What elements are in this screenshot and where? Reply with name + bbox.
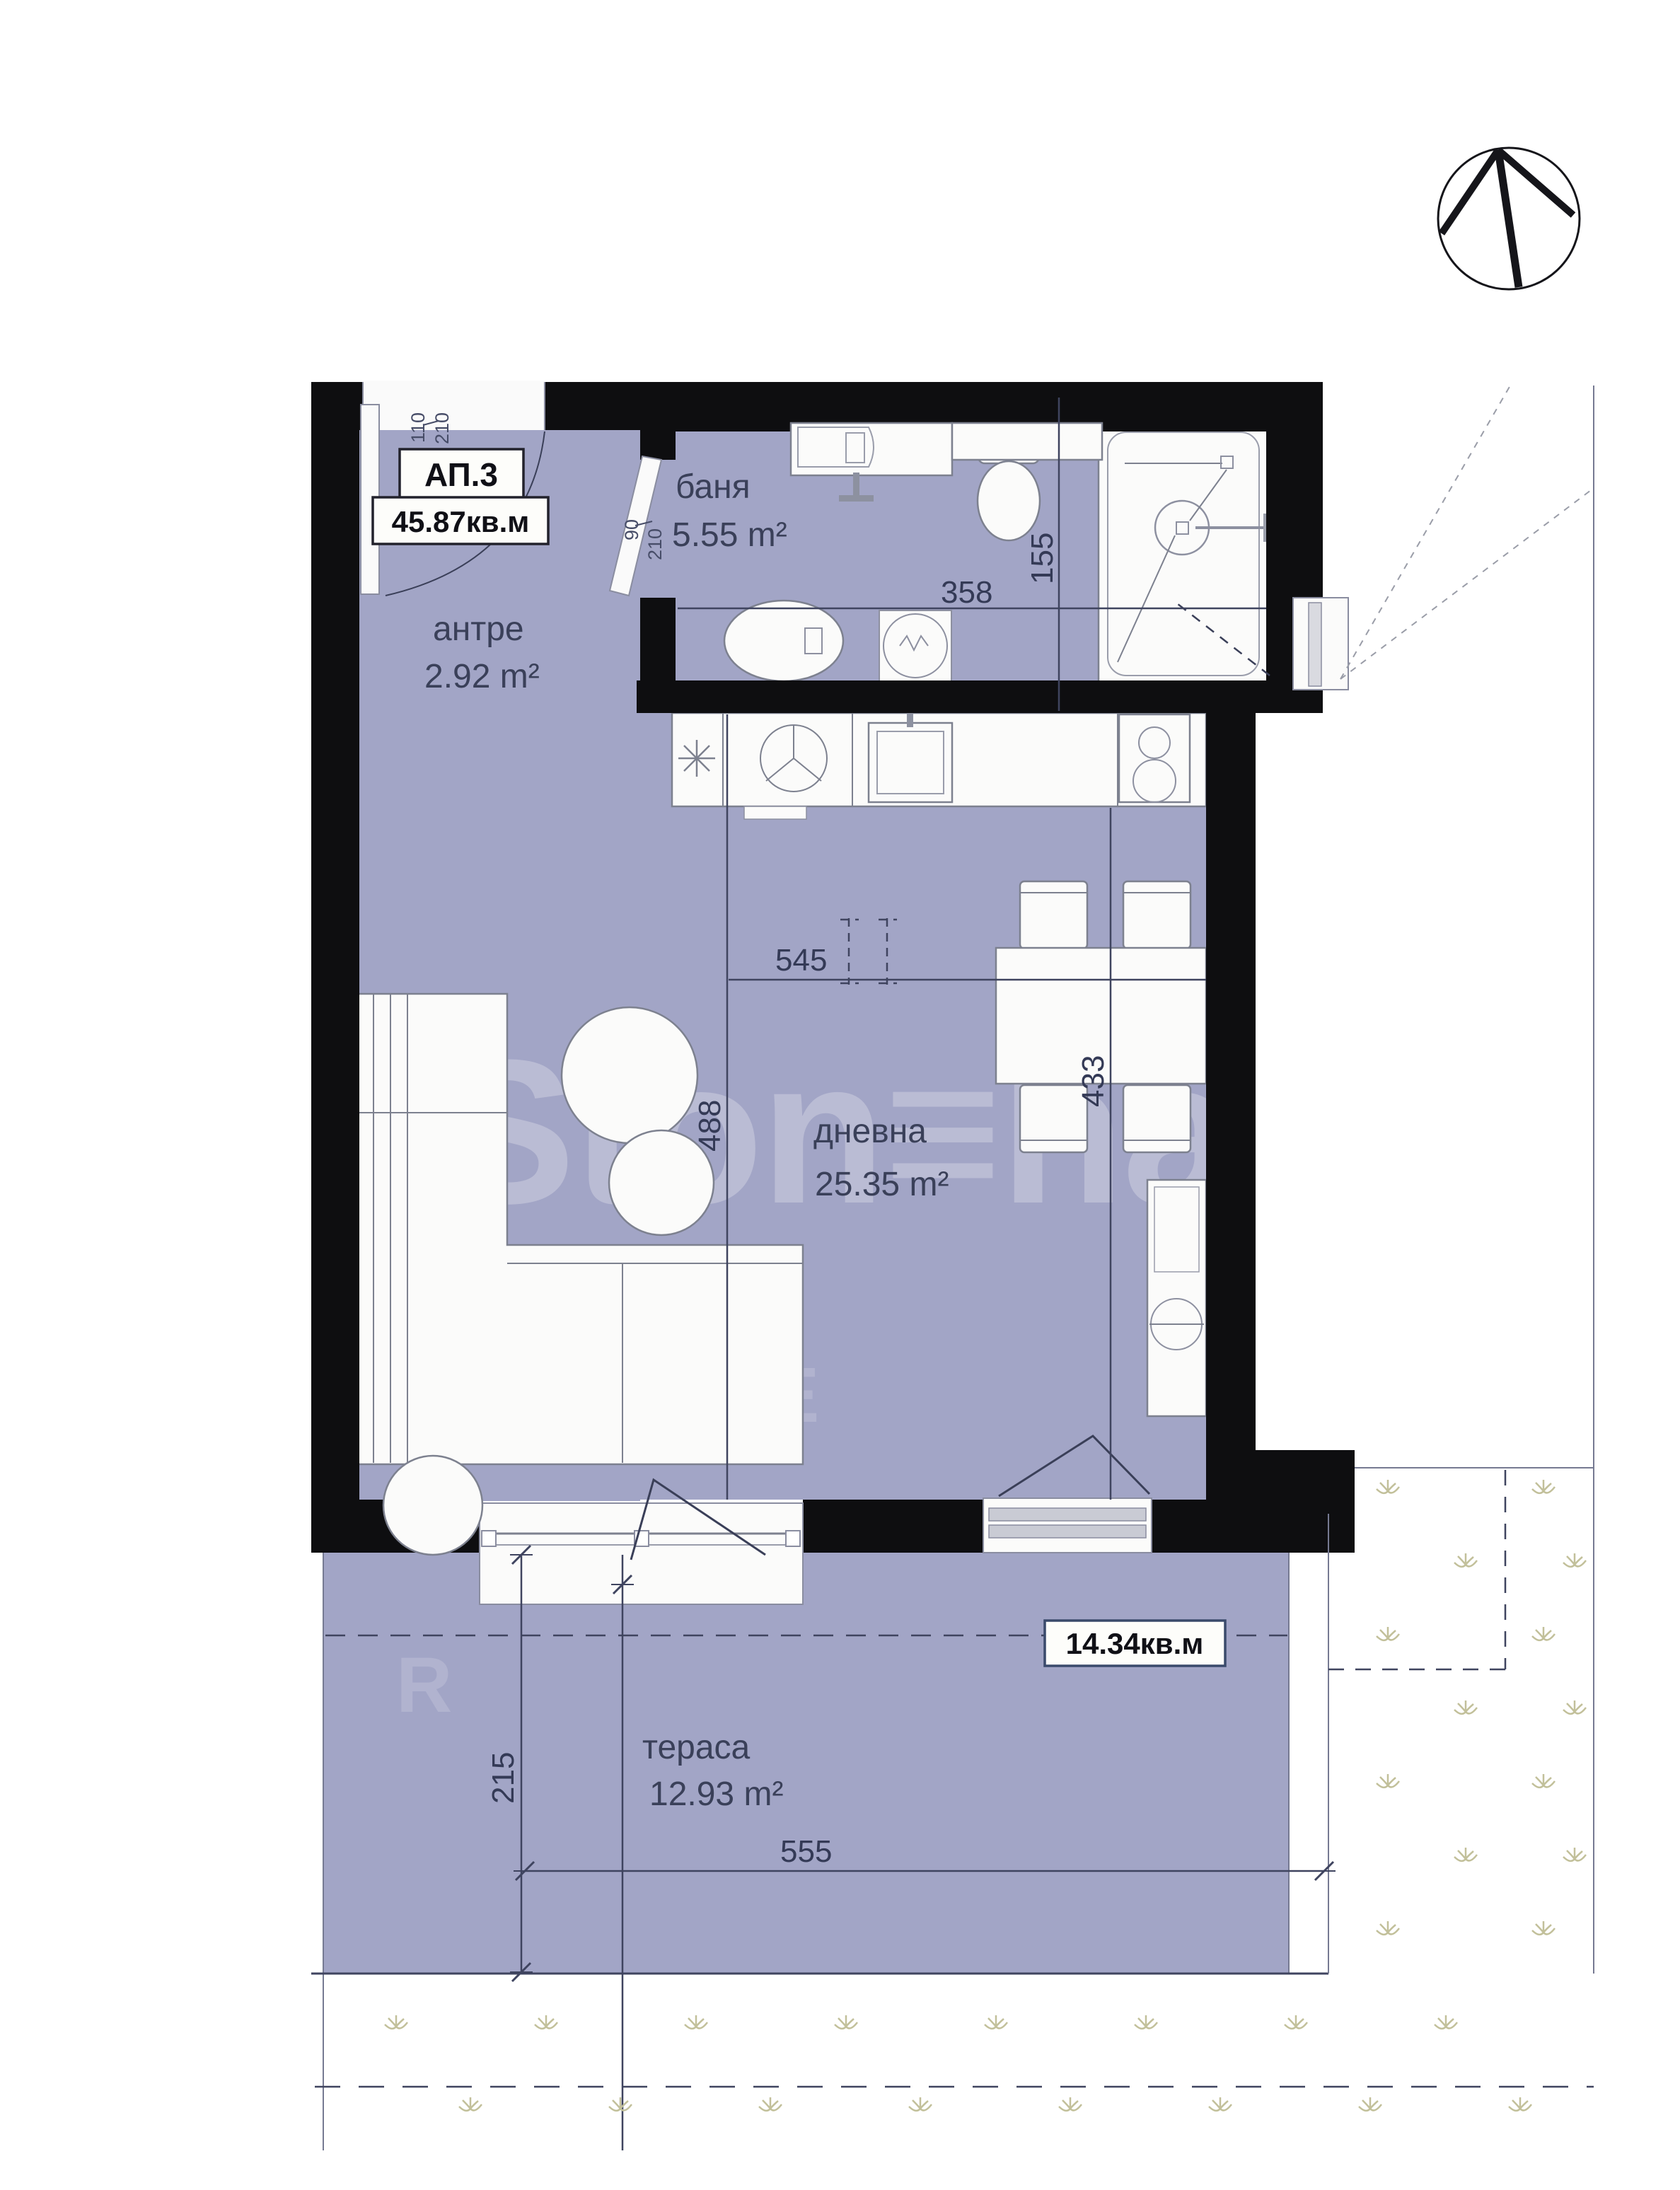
north-compass-icon [1438, 148, 1580, 289]
counter-front-detail [744, 806, 806, 819]
grass-mark [459, 2097, 482, 2111]
room-name-bath: баня [676, 468, 751, 506]
grass-mark [1377, 1774, 1399, 1788]
dim-bath-door-w: 90 [621, 519, 642, 540]
room-area-hall: 2.92 m² [424, 658, 540, 695]
grass-mark [1377, 1480, 1399, 1493]
coffee-table-icon [562, 1007, 697, 1143]
grass-mark [759, 2097, 782, 2111]
dim-dining-zone: 433 [1076, 1055, 1111, 1107]
shower-icon [1099, 423, 1273, 685]
dim-living-depth: 488 [693, 1100, 727, 1152]
terrace-floor [323, 1553, 1289, 1974]
room-area-terrace: 12.93 m² [649, 1775, 783, 1813]
grass-mark [1563, 1553, 1586, 1567]
grass-mark [1454, 1553, 1477, 1567]
grass-mark [1359, 2097, 1381, 2111]
terrace-area-label: 14.34кв.м [1066, 1627, 1204, 1660]
washing-machine-icon [879, 610, 951, 681]
grass-mark [1532, 1921, 1555, 1935]
dim-terrace-depth: 215 [486, 1752, 521, 1804]
grass-mark [685, 2015, 707, 2029]
dim-terrace-width: 555 [780, 1834, 832, 1869]
grass-mark [1454, 1848, 1477, 1861]
wall-right-living [1206, 713, 1256, 1553]
chair-icon [1123, 881, 1191, 949]
grass-mark [1285, 2015, 1307, 2029]
room-name-living: дневна [813, 1113, 927, 1150]
dim-bath-width: 358 [941, 575, 992, 610]
floor-plan-drawing: Ston≡hard E R [0, 0, 1680, 2190]
grass-mark [1454, 1701, 1477, 1714]
dim-living-width: 545 [775, 943, 827, 978]
dim-entry-door-h: 210 [431, 412, 453, 444]
room-name-terrace: тераса [642, 1729, 751, 1766]
grass-mark [1209, 2097, 1232, 2111]
washbasin-icon [724, 601, 843, 681]
grass-mark [1135, 2015, 1157, 2029]
grass-mark [1435, 2015, 1457, 2029]
chair-icon [1123, 1085, 1191, 1152]
wall-bath-door-top [640, 382, 676, 461]
dim-entry-door-w: 110 [407, 412, 429, 443]
grass-mark [1532, 1480, 1555, 1493]
wall-bottom-right [1152, 1500, 1355, 1553]
room-area-living: 25.35 m² [815, 1166, 949, 1203]
floor-plan-canvas: Ston≡hard E R [0, 0, 1680, 2190]
pouf-icon [383, 1456, 482, 1555]
apartment-badge: АП.3 45.87кв.м [373, 449, 548, 544]
grass-mark [985, 2015, 1007, 2029]
grass-mark [835, 2015, 857, 2029]
wall-left-outer [311, 382, 359, 1553]
grass-mark [1059, 2097, 1082, 2111]
watermark-fragment: R [396, 1642, 452, 1729]
room-name-hall: антре [433, 610, 524, 648]
dim-bath-depth: 155 [1025, 533, 1060, 584]
wall-bath-bottom [637, 680, 1323, 713]
apartment-area-label: 45.87кв.м [392, 505, 530, 538]
grass-mark [909, 2097, 932, 2111]
grass-mark [535, 2015, 557, 2029]
dim-bath-door-h: 210 [644, 528, 666, 560]
grass-mark [1563, 1848, 1586, 1861]
wall-corner-column [1256, 1450, 1355, 1503]
terrace-badge: 14.34кв.м [1045, 1621, 1225, 1666]
grass-mark [1509, 2097, 1531, 2111]
cabinet-icon [1147, 1180, 1206, 1416]
apartment-number-label: АП.3 [424, 456, 498, 493]
grass-mark [1532, 1774, 1555, 1788]
wall-top-mid [545, 382, 640, 430]
room-area-bath: 5.55 m² [672, 516, 787, 554]
grass-mark [385, 2015, 407, 2029]
grass-mark [1563, 1701, 1586, 1714]
grass-mark [609, 2097, 632, 2111]
chair-icon [1020, 881, 1087, 949]
wall-bottom-mid [803, 1500, 983, 1553]
grass-mark [1377, 1627, 1399, 1640]
grass-mark [1377, 1921, 1399, 1935]
grass-mark [1532, 1627, 1555, 1640]
